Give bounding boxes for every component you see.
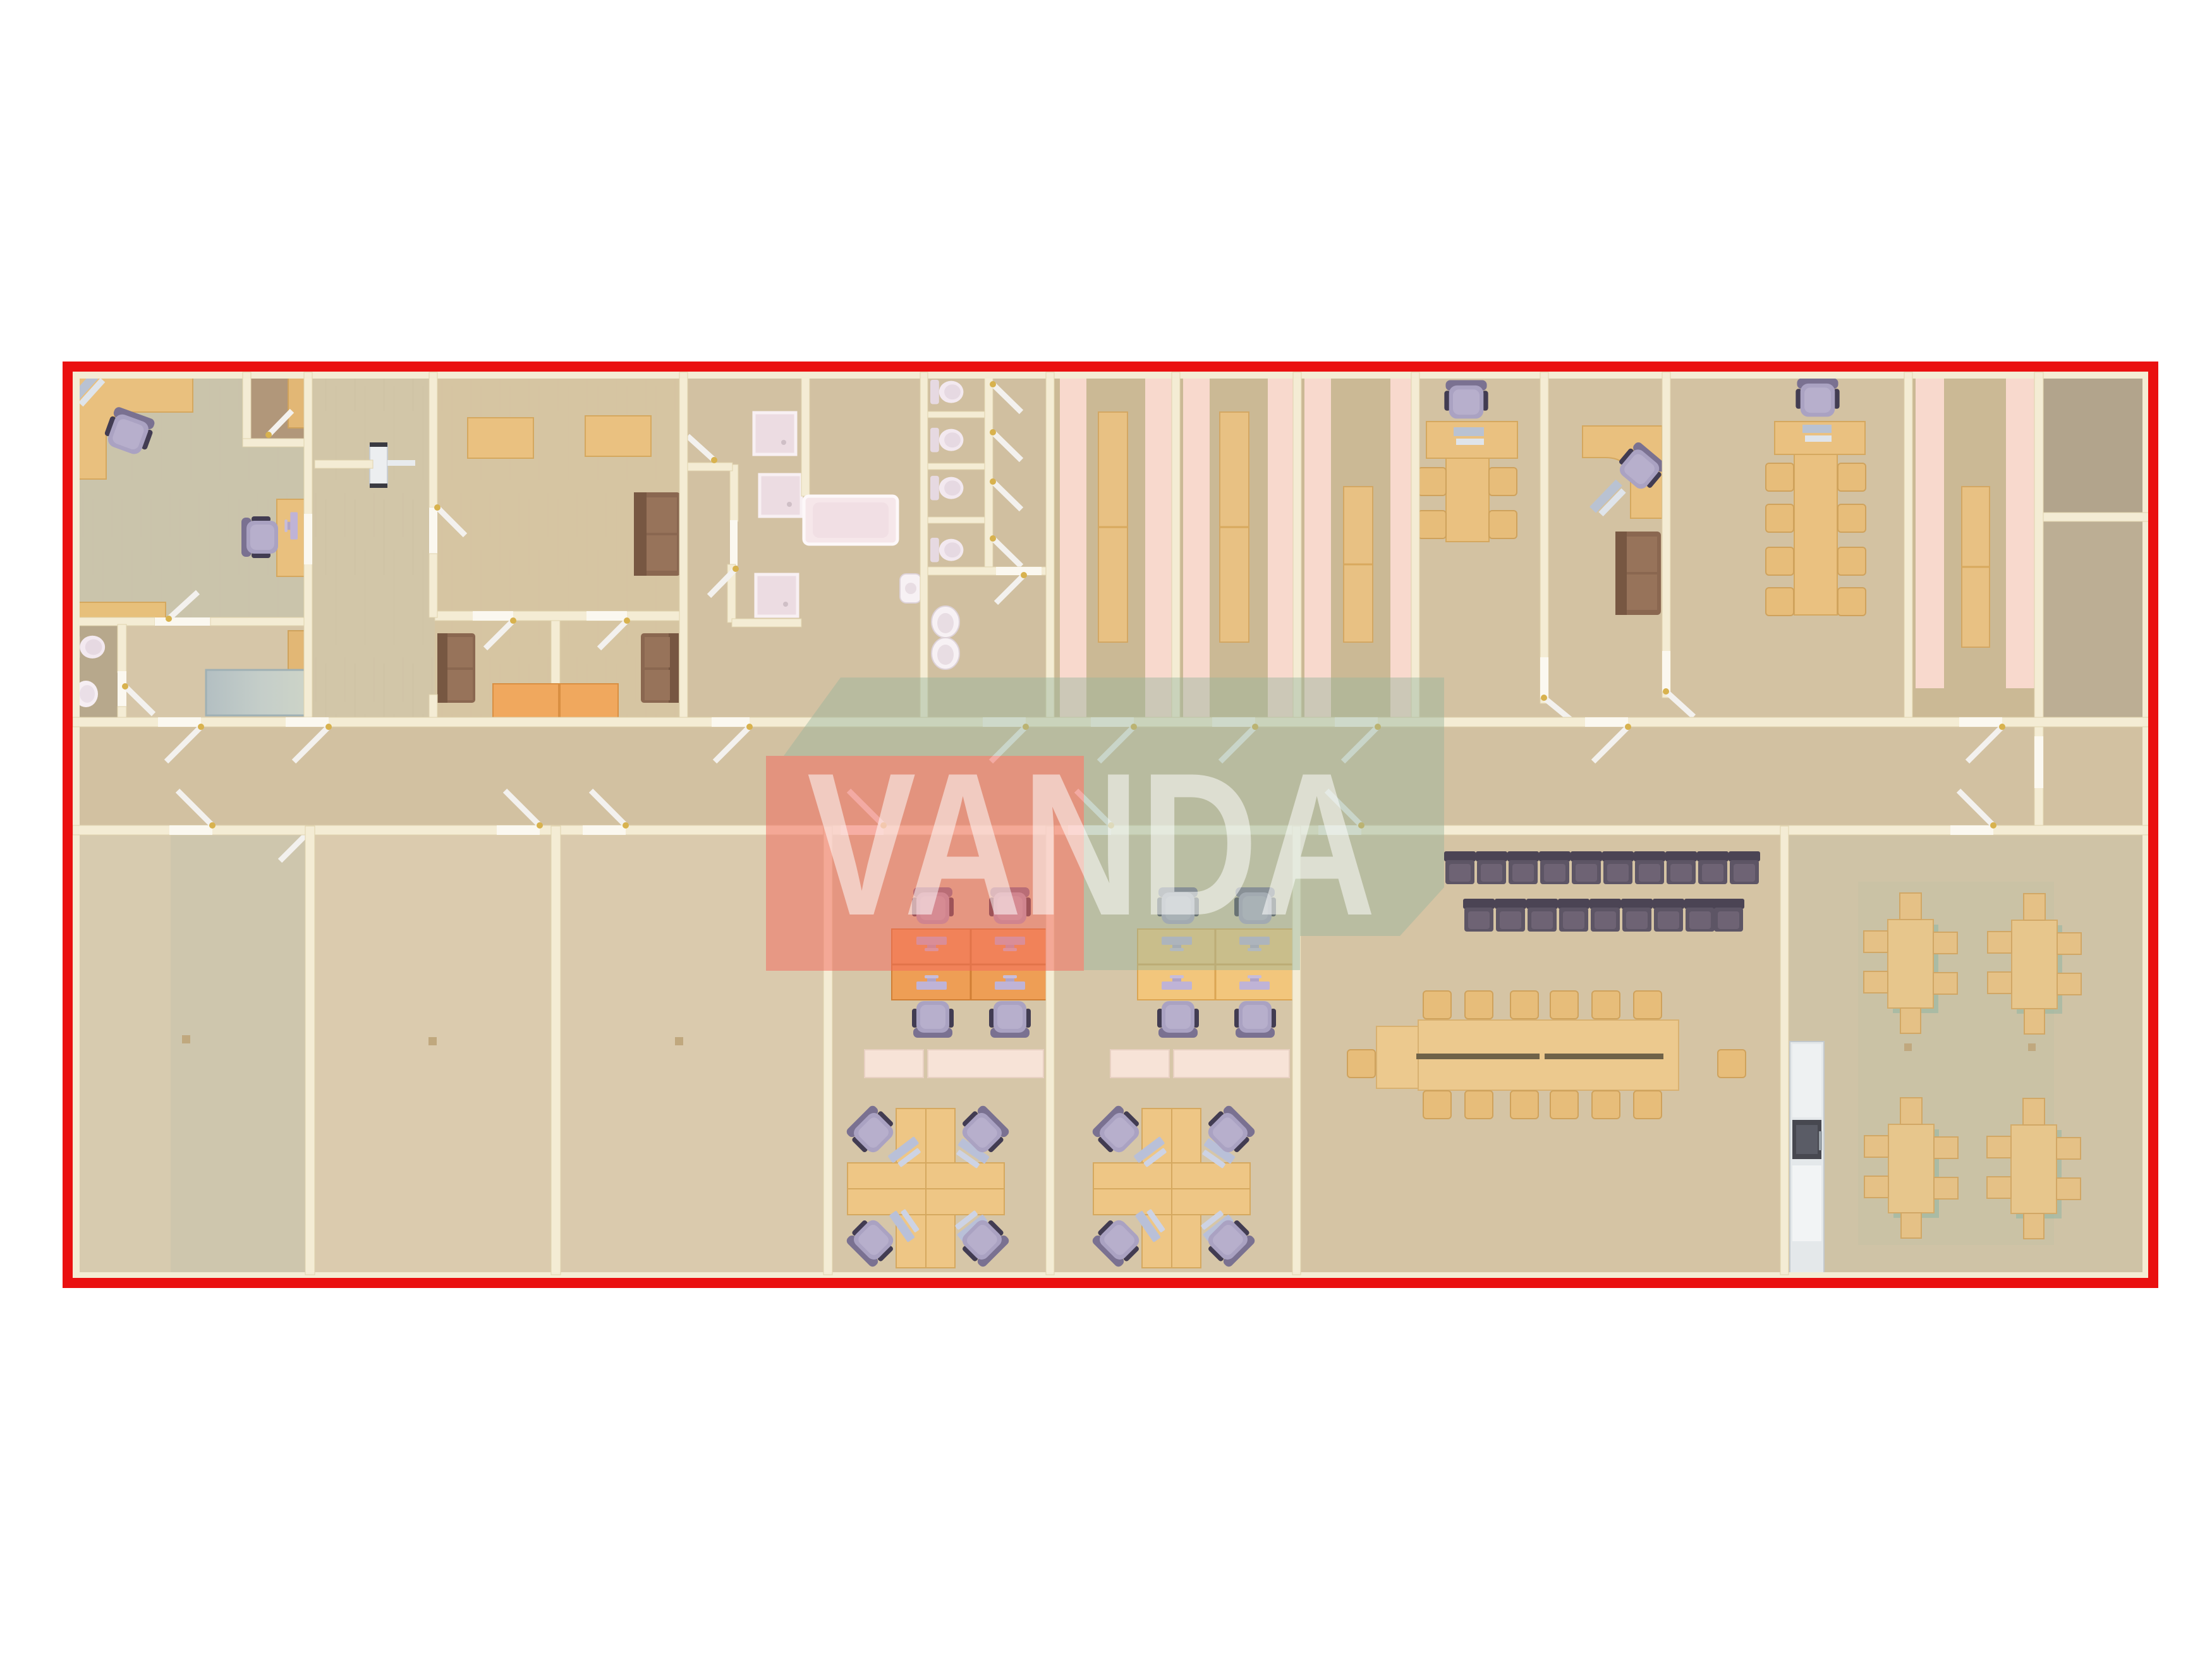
svg-text:VANDA: VANDA: [807, 731, 1376, 958]
